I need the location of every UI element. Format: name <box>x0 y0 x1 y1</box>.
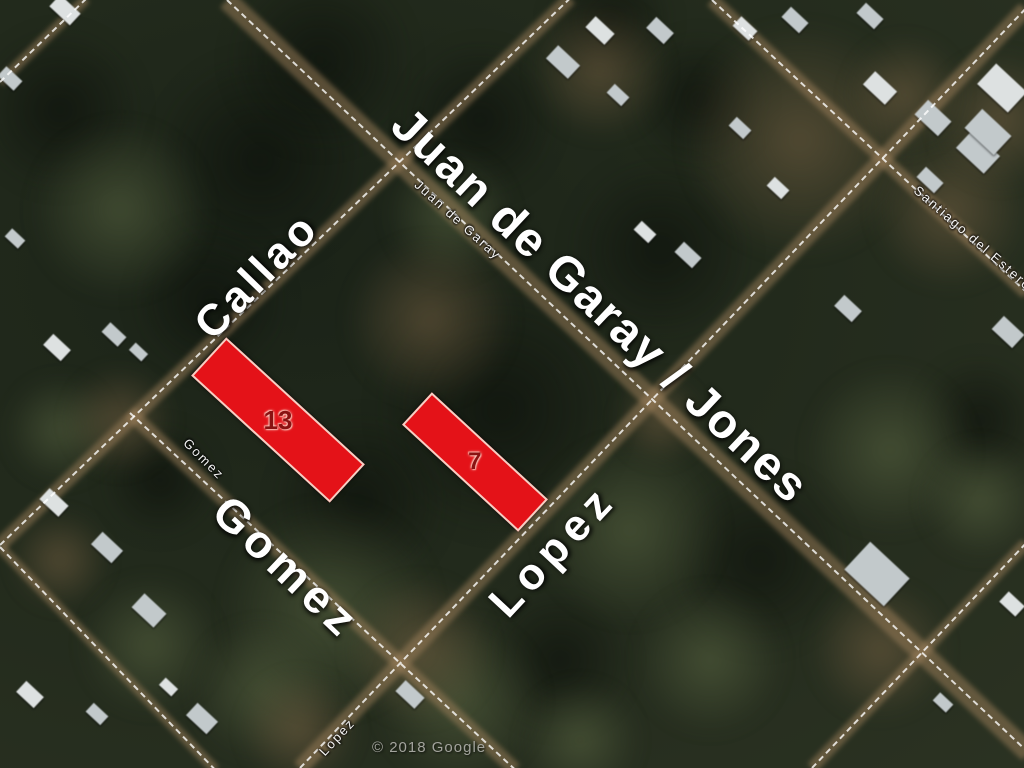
house-roof <box>16 680 44 707</box>
parcel-number: 7 <box>468 448 481 476</box>
grass-patch <box>635 585 785 735</box>
house-roof <box>992 316 1024 348</box>
grass-patch <box>30 120 210 300</box>
satellite-map-canvas[interactable]: Juan de GarayGomezSantiago del EsteroLop… <box>0 0 1024 768</box>
house-roof <box>43 333 71 360</box>
grass-patch <box>920 440 1024 560</box>
map-attribution: © 2018 Google <box>372 739 486 756</box>
house-roof <box>102 322 127 347</box>
house-roof <box>999 591 1024 616</box>
parcel-number: 13 <box>264 404 293 435</box>
house-roof <box>856 3 883 30</box>
house-roof <box>5 228 26 248</box>
house-roof <box>834 294 862 321</box>
house-roof <box>933 692 954 712</box>
house-roof <box>86 703 109 725</box>
